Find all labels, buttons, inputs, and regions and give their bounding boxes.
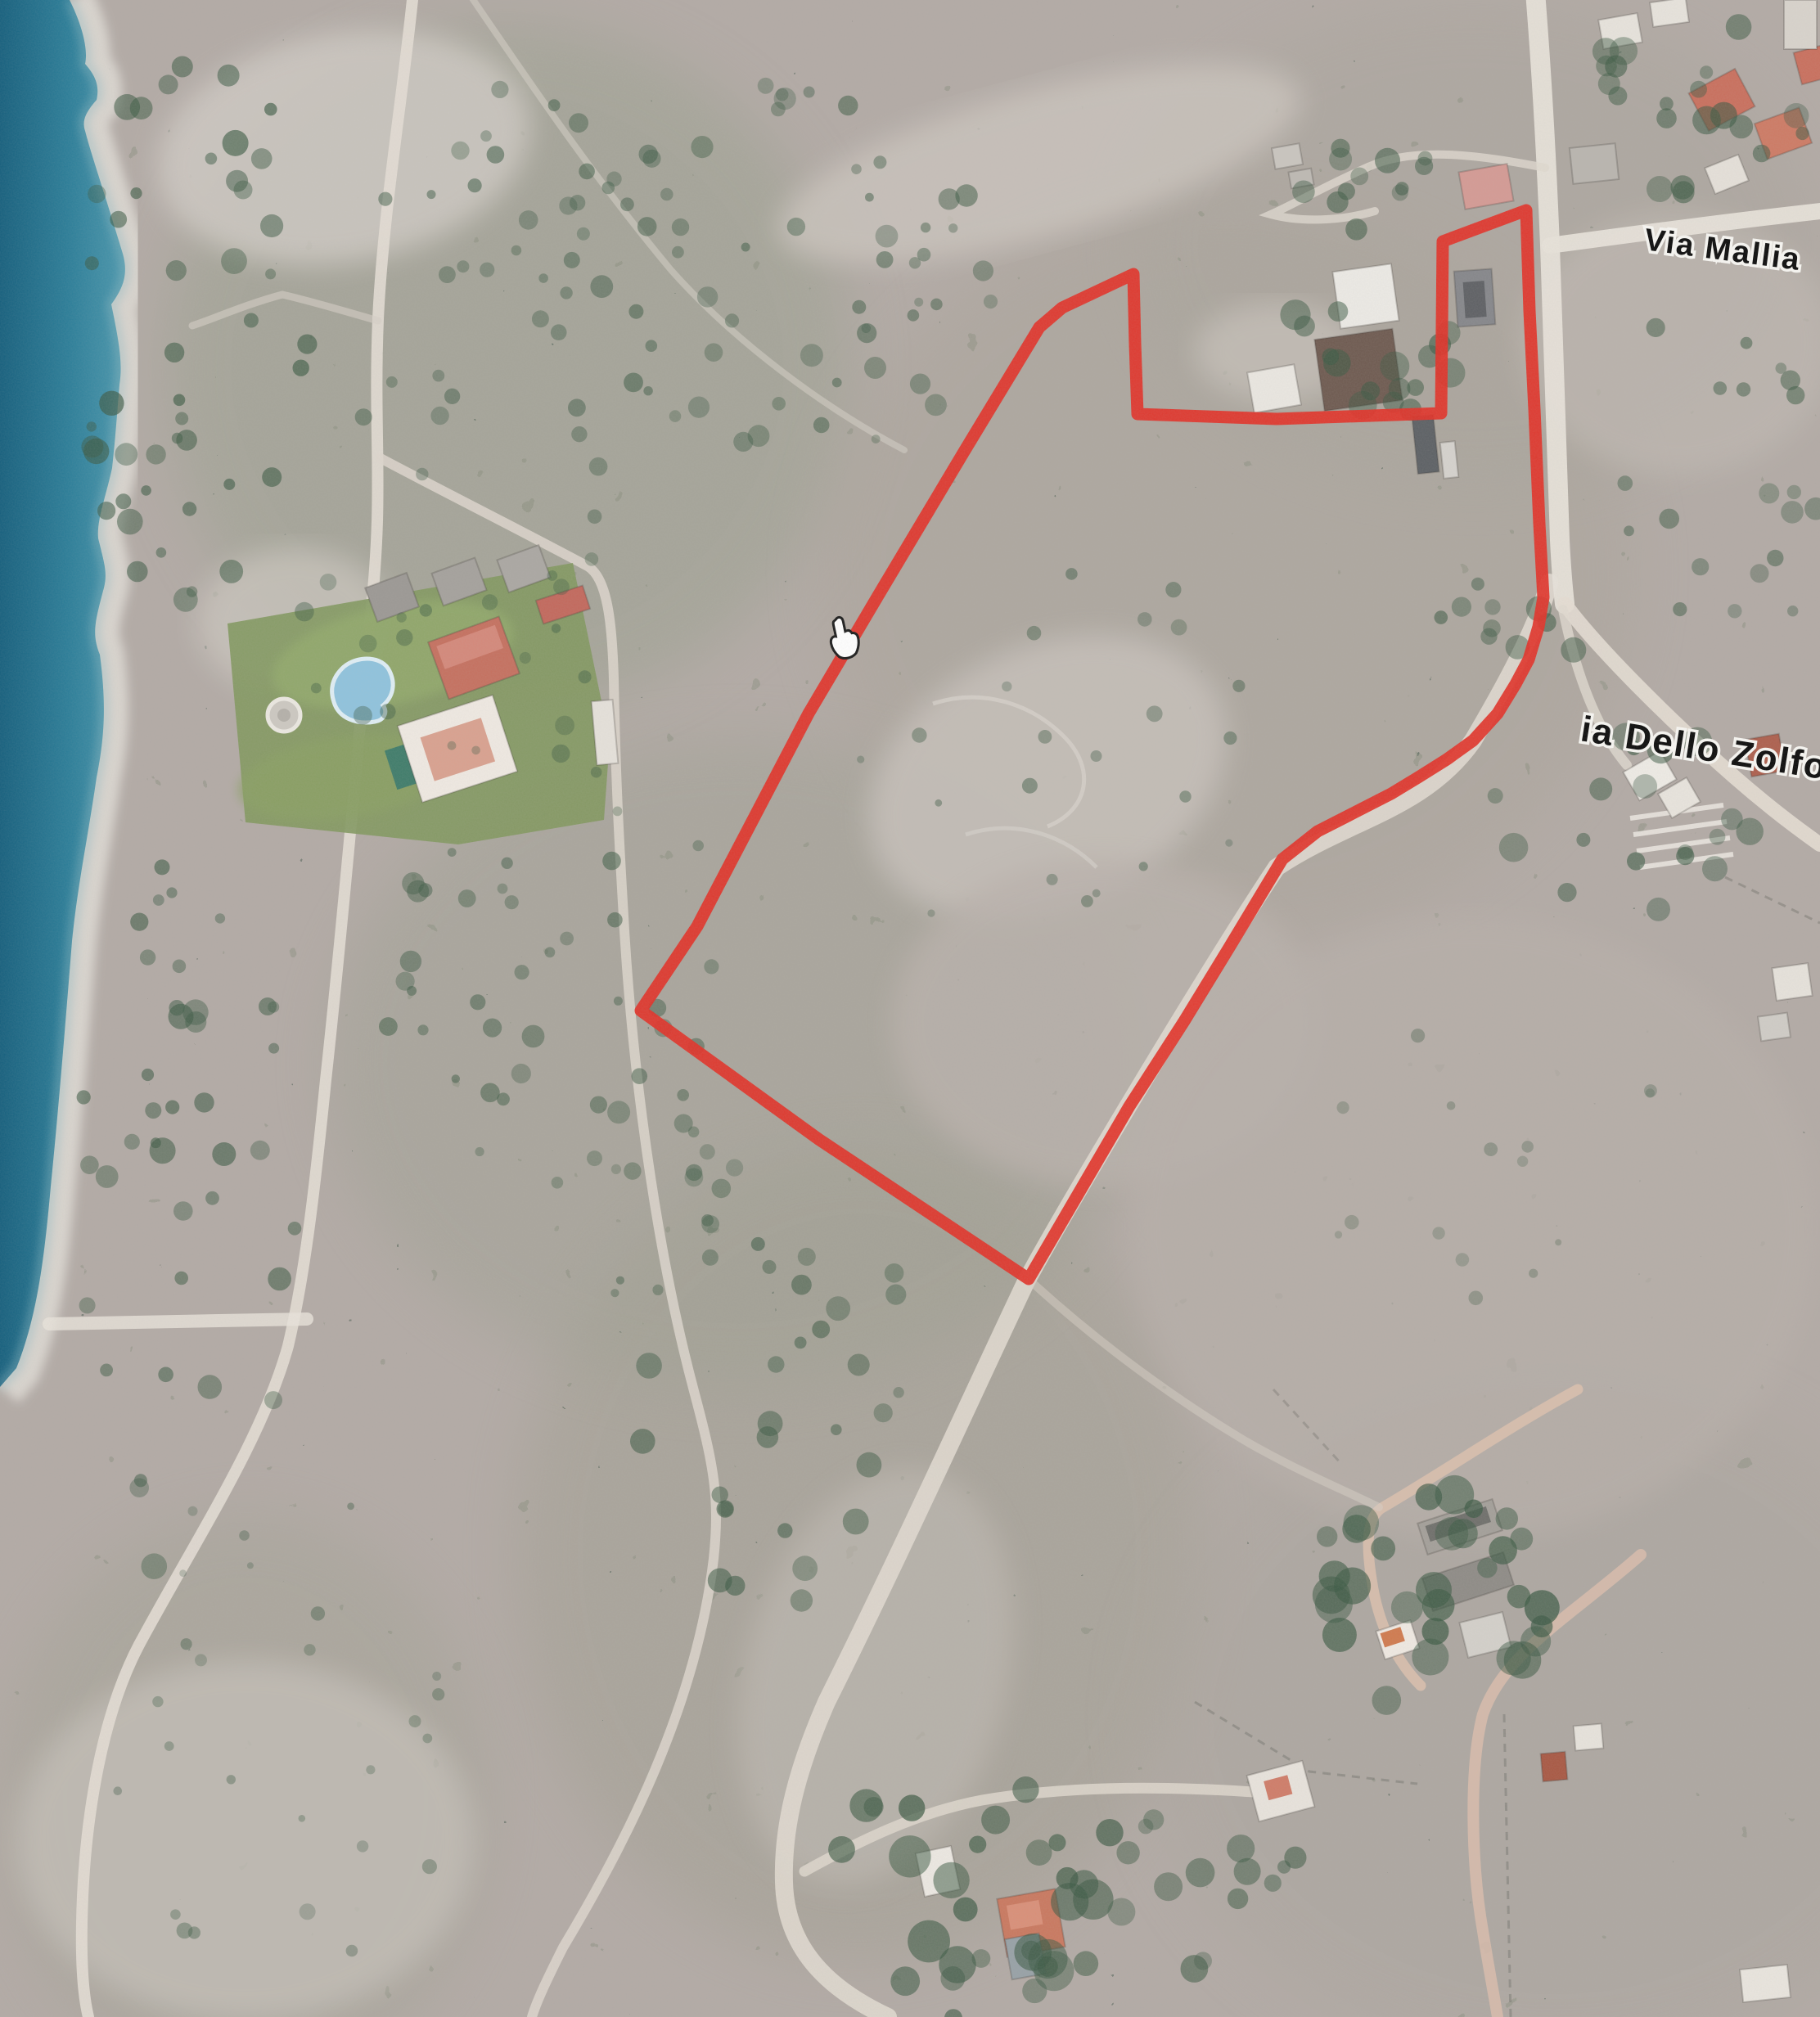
- scanned-aerial-map: Via Mallia ia Dello Zolfo: [0, 0, 1820, 2017]
- annotation-overlay: Via Mallia ia Dello Zolfo: [0, 0, 1820, 2017]
- scan-grain: [0, 0, 1820, 2017]
- satellite-image: Via Mallia ia Dello Zolfo: [0, 0, 1820, 2017]
